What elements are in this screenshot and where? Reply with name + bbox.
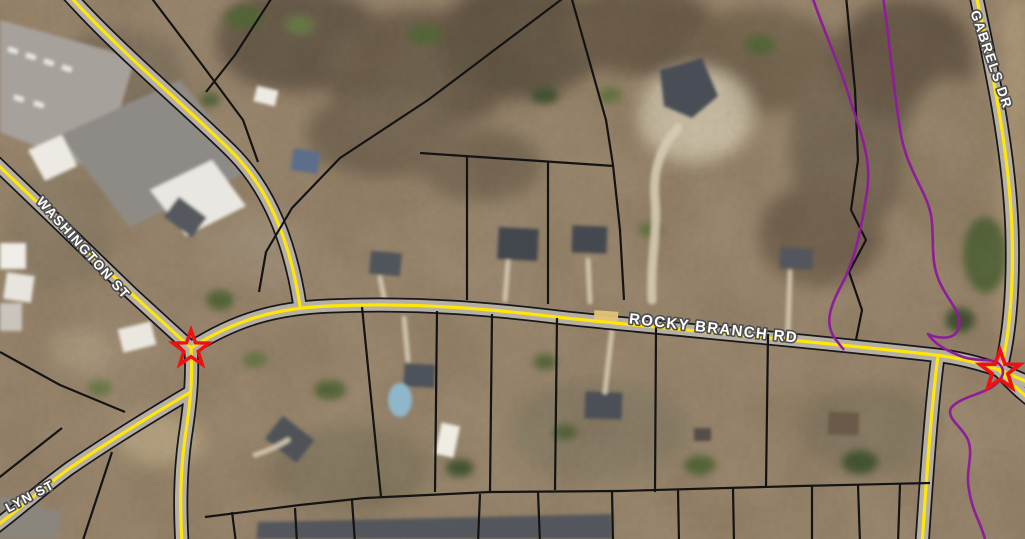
house bbox=[403, 363, 435, 388]
aerial-parcel-map[interactable]: WASHINGTON ST ROCKY BRANCH RD GABRELS DR… bbox=[0, 0, 1025, 539]
swimming-pool bbox=[388, 383, 412, 417]
house bbox=[572, 225, 608, 253]
parcel-map-canvas: WASHINGTON ST ROCKY BRANCH RD GABRELS DR… bbox=[0, 0, 1025, 539]
house bbox=[369, 251, 402, 277]
house bbox=[497, 227, 539, 261]
house bbox=[828, 411, 860, 435]
house bbox=[779, 247, 813, 270]
blue-roof-house bbox=[290, 148, 320, 174]
building bbox=[0, 243, 26, 269]
house bbox=[585, 391, 623, 419]
